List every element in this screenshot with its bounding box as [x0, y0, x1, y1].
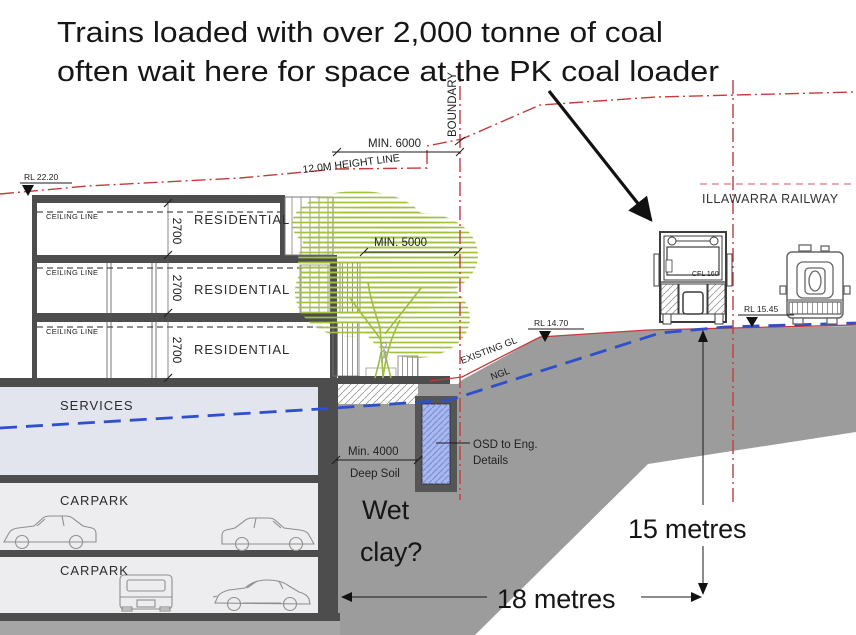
residential-label-1: RESIDENTIAL	[194, 212, 290, 227]
rl-2220-label: RL 22.20	[24, 172, 58, 182]
dim2700-label-2: 2700	[170, 275, 184, 302]
floor-slab-2	[32, 255, 337, 263]
deep-soil-hatch-lines	[338, 384, 418, 404]
dim-15m-arrow-down	[698, 583, 708, 595]
annotation-arrow	[549, 91, 651, 220]
services-level	[0, 387, 318, 475]
osd-tank-hatch	[422, 404, 450, 484]
title-line-2: often wait here for space at the PK coal…	[57, 56, 719, 88]
loco-hatch-right	[708, 284, 725, 314]
loco-horn-right	[710, 237, 718, 245]
terrace-steps	[366, 368, 396, 377]
loco-model-label: CFL 160	[692, 271, 719, 278]
planter-terrace	[398, 356, 418, 377]
soil-under-building	[0, 621, 340, 635]
wet-clay-label-1: Wet	[362, 495, 410, 525]
dim2700-label-3: 2700	[170, 337, 184, 364]
height-limit-line	[0, 92, 856, 194]
osd-label-2: Details	[473, 455, 508, 467]
basement-bottom-slab	[0, 613, 340, 621]
rl-2220-marker	[20, 183, 72, 196]
train-bogie	[789, 302, 841, 314]
train-roof-box-2	[821, 246, 829, 251]
min6000-label: MIN. 6000	[368, 138, 421, 150]
basement-right-wall	[318, 387, 338, 621]
train-window-oval	[809, 271, 821, 291]
loco-coupler	[683, 292, 703, 314]
loco-side-bar-left	[654, 254, 659, 286]
train-side-box-left	[780, 286, 786, 294]
ceiling-label-3: CEILING LINE	[46, 327, 98, 336]
carpark-label-2: CARPARK	[60, 563, 129, 578]
loco-side-bar-right	[727, 254, 732, 286]
illawarra-railway-label: ILLAWARRA RAILWAY	[702, 192, 839, 206]
residential-label-3: RESIDENTIAL	[194, 342, 290, 357]
left-wall	[32, 195, 37, 387]
train-foot-right	[827, 318, 837, 324]
height-line-label: 12.0M HEIGHT LINE	[302, 152, 401, 176]
floor-slab-3	[32, 313, 337, 322]
train-roof-box-1	[799, 245, 811, 251]
train-foot-left	[793, 318, 803, 324]
ground-slab	[0, 378, 338, 387]
roof-slab	[32, 195, 285, 203]
slide-canvas: CFL 160	[0, 0, 856, 635]
osd-tank	[415, 396, 457, 492]
tree	[292, 191, 478, 378]
deep-soil-label: Deep Soil	[350, 468, 400, 480]
residential-label-2: RESIDENTIAL	[194, 282, 290, 297]
loco-handle	[666, 260, 672, 272]
dim-18m-arrow-right	[691, 592, 702, 602]
rl-1470-label: RL 14.70	[534, 318, 568, 328]
loco-foot-right	[715, 314, 723, 324]
services-floor-slab	[0, 475, 338, 483]
train-side-box-right	[844, 286, 850, 294]
carpark-mid-slab	[0, 550, 338, 557]
fifteen-metres-label: 15 metres	[628, 514, 746, 544]
wet-clay-label-2: clay?	[360, 537, 422, 567]
tree-canopy	[362, 278, 470, 358]
osd-label-1: OSD to Eng.	[473, 439, 538, 451]
min5000-label: MIN. 5000	[374, 237, 427, 249]
freight-locomotive: CFL 160	[654, 232, 732, 324]
ceiling-label-1: CEILING LINE	[46, 212, 98, 221]
loco-hatch-left	[661, 284, 678, 314]
cross-section-diagram: CFL 160	[0, 0, 856, 635]
rl-1545-label: RL 15.45	[744, 304, 778, 314]
title-line-1: Trains loaded with over 2,000 tonne of c…	[57, 17, 663, 49]
min4000-label: Min. 4000	[348, 446, 399, 458]
boundary-label: BOUNDARY	[447, 72, 459, 137]
loco-horn-left	[668, 237, 676, 245]
carpark-level-2	[0, 557, 318, 613]
ceiling-label-2: CEILING LINE	[46, 268, 98, 277]
loco-foot-left	[663, 314, 671, 324]
eighteen-metres-label: 18 metres	[497, 584, 615, 614]
passenger-train	[780, 245, 850, 324]
services-label: SERVICES	[60, 398, 134, 413]
carpark-label-1: CARPARK	[60, 493, 129, 508]
dim2700-label-1: 2700	[170, 218, 184, 245]
